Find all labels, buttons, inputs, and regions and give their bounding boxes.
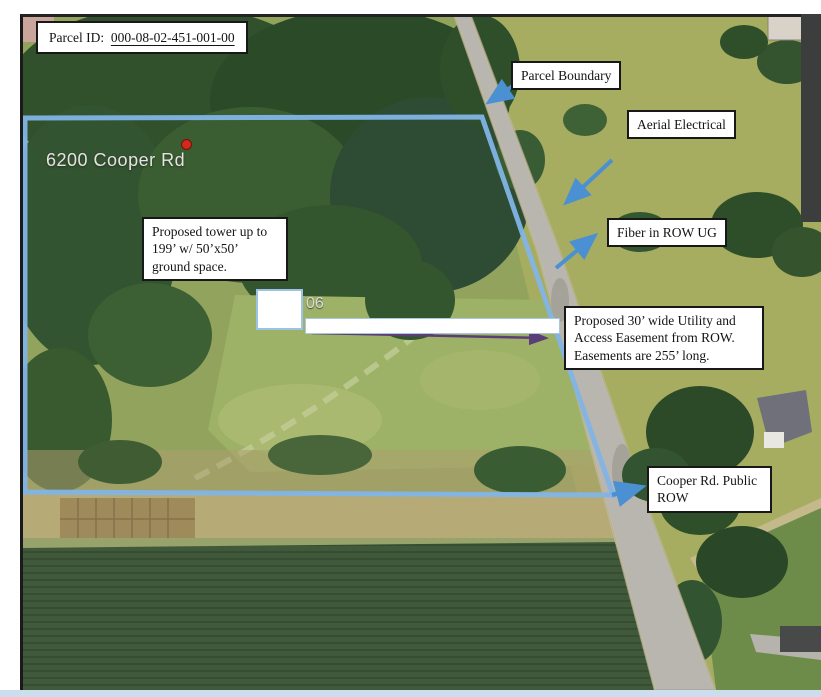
map-pin-icon [181,139,192,150]
proposed-tower-label: Proposed tower up to 199’ w/ 50’x50’ gro… [142,217,288,281]
utility-easement-label: Proposed 30’ wide Utility and Access Eas… [564,306,764,370]
bottom-edge-bar [0,690,821,697]
tower-ground-space-box [256,289,303,330]
parcel-id-value: 000-08-02-451-001-00 [111,30,235,45]
fiber-row-ug-label: Fiber in ROW UG [607,218,727,247]
aerial-electrical-label: Aerial Electrical [627,110,736,139]
page: { "annotations": { "parcel_id": { "label… [0,0,821,697]
easement-strip [305,318,560,334]
map-address-partial-label: 06 [306,295,324,313]
cooper-rd-row-label: Cooper Rd. Public ROW [647,466,772,513]
top-right-dark-edge [801,14,821,222]
parcel-id-label: Parcel ID: 000-08-02-451-001-00 [36,21,248,54]
parcel-id-prefix: Parcel ID: [49,30,104,45]
map-address-label: 6200 Cooper Rd [46,150,185,171]
parcel-boundary-label: Parcel Boundary [511,61,621,90]
